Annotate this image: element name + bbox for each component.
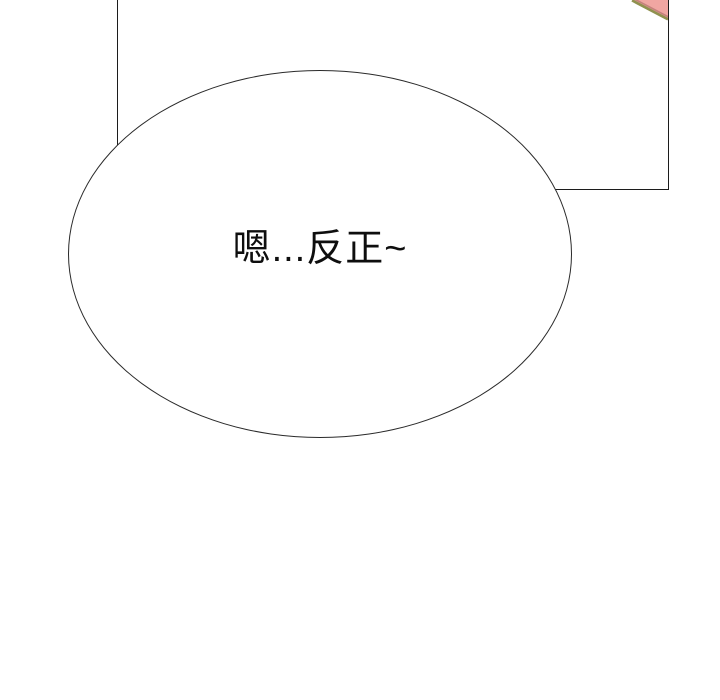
speech-text: 嗯...反正~ <box>233 229 408 271</box>
speech-bubble: 嗯...反正~ <box>68 70 572 438</box>
comic-page: 嗯...反正~ <box>0 0 720 700</box>
